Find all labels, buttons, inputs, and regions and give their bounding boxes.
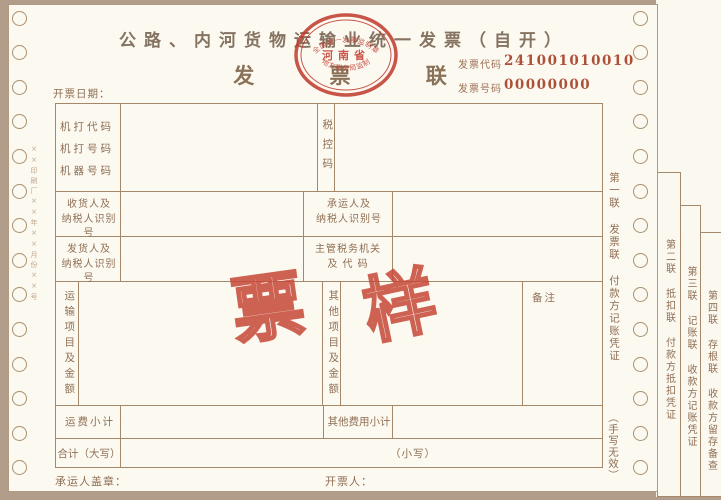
- carrier-seal-label: 承运人盖章：: [55, 474, 127, 490]
- grid-line: [303, 191, 304, 281]
- issue-date-label: 开票日期：: [53, 87, 111, 102]
- shipper-taxid-label: 发货人及 纳税人识别号: [58, 243, 120, 287]
- copy1-note: 第一联 发票联 付款方记账凭证: [607, 172, 622, 412]
- punch-hole-left: [12, 184, 27, 199]
- punch-hole-left: [12, 149, 27, 164]
- carrier-taxid-label: 承运人及 纳税人识别号: [310, 198, 388, 227]
- punch-hole-right: [633, 45, 648, 60]
- punch-hole-right: [633, 149, 648, 164]
- svg-text:河南省: 河南省: [322, 48, 370, 62]
- punch-hole-left: [12, 253, 27, 268]
- grid-line: [55, 405, 603, 406]
- punch-hole-left: [12, 426, 27, 441]
- watermark-piao: 票: [227, 267, 308, 348]
- punch-hole-left: [12, 80, 27, 95]
- invoice-code-value: 241001010010: [504, 53, 635, 69]
- remarks-label: 备注: [532, 291, 557, 306]
- invoice-scan: 第二联 抵扣联 付款方抵扣凭证 第三联 记账联 收款方记账凭证 第四联 存根联 …: [0, 0, 721, 500]
- transport-items-label: 运输项目及金额: [61, 290, 76, 402]
- grid-line: [317, 103, 318, 191]
- punch-hole-left: [12, 391, 27, 406]
- grid-line: [322, 281, 323, 405]
- punch-hole-right: [633, 80, 648, 95]
- consignee-taxid-label: 收货人及 纳税人识别号: [58, 198, 120, 242]
- handwriting-invalid-note: （手写无效）: [606, 412, 621, 481]
- copy3-sheet: 第三联 记账联 收款方记账凭证: [680, 205, 701, 497]
- punch-hole-right: [633, 218, 648, 233]
- copy2-sheet: 第二联 抵扣联 付款方抵扣凭证: [657, 172, 681, 497]
- copy2-note: 第二联 抵扣联 付款方抵扣凭证: [662, 173, 677, 496]
- grid-line: [55, 191, 603, 192]
- invoice-code-label: 发票代码: [458, 56, 502, 71]
- punch-hole-left: [12, 218, 27, 233]
- freight-subtotal-label: 运费小计: [62, 415, 118, 430]
- invoice-number-label: 发票号码: [458, 80, 502, 95]
- other-items-label: 其他项目及金额: [325, 290, 340, 402]
- tax-supervision-stamp-icon: 全国统一发票监制章 地方税务局监制 河南省: [293, 10, 399, 98]
- grid-line: [55, 236, 603, 237]
- total-in-figures-label: （小写）: [390, 447, 436, 462]
- grid-line: [392, 405, 393, 438]
- punch-hole-left: [12, 357, 27, 372]
- punch-hole-right: [633, 357, 648, 372]
- punch-hole-right: [633, 253, 648, 268]
- punch-hole-left: [12, 45, 27, 60]
- tax-control-code-label: 税控码: [319, 119, 334, 178]
- grid-line: [55, 438, 603, 439]
- copy4-sheet: 第四联 存根联 收款方留存备查: [700, 232, 721, 497]
- issuer-label: 开票人：: [325, 474, 373, 490]
- printer-mark: ××印刷厂××年××月份××号: [29, 145, 39, 303]
- grid-line: [55, 281, 603, 282]
- invoice-number-value: 00000000: [504, 77, 591, 93]
- grid-line: [120, 103, 121, 281]
- copy4-note: 第四联 存根联 收款方留存备查: [704, 233, 719, 496]
- machine-code-labels: 机打代码 机打号码 机器号码: [60, 116, 118, 182]
- grid-line: [522, 281, 523, 405]
- other-fees-subtotal-label: 其他费用小计: [326, 415, 392, 430]
- punch-hole-right: [633, 391, 648, 406]
- punch-hole-right: [633, 11, 648, 26]
- punch-hole-left: [12, 322, 27, 337]
- grid-line: [78, 281, 79, 405]
- punch-hole-left: [12, 11, 27, 26]
- watermark-yang: 样: [357, 263, 442, 348]
- punch-hole-right: [633, 322, 648, 337]
- punch-hole-right: [633, 184, 648, 199]
- punch-hole-right: [633, 426, 648, 441]
- copy3-note: 第三联 记账联 收款方记账凭证: [683, 206, 698, 496]
- total-in-words-label: 合计（大写）: [57, 447, 121, 462]
- grid-line: [323, 405, 324, 438]
